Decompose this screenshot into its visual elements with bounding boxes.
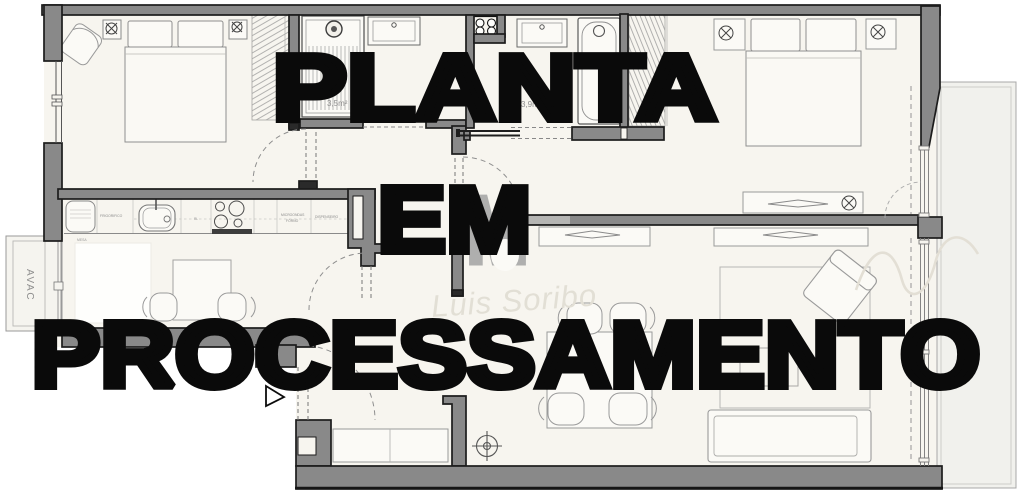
svg-text:EM: EM [378,168,532,272]
svg-text:PLANTA: PLANTA [273,36,717,140]
svg-text:DISPENSEIRO: DISPENSEIRO [315,215,339,219]
svg-text:RL: RL [194,217,198,221]
svg-text:AVAC: AVAC [24,269,35,301]
svg-text:FORNO: FORNO [286,219,299,223]
svg-text:MICROONDAS: MICROONDAS [281,213,305,217]
svg-text:MESA: MESA [77,238,87,242]
svg-text:FRIGORIFICO: FRIGORIFICO [100,214,123,218]
svg-text:PROCESSAMENTO: PROCESSAMENTO [32,303,981,407]
